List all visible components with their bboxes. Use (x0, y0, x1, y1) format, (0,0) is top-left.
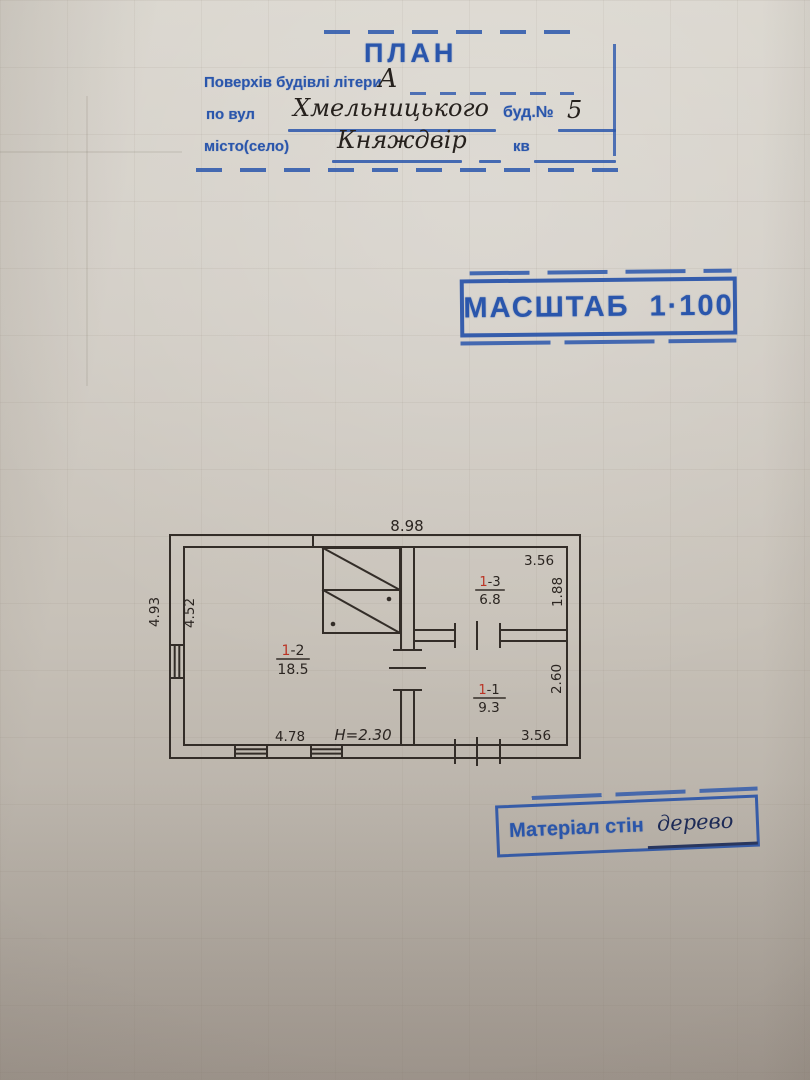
room-1-1-number: 1-1 (478, 683, 499, 698)
stove (323, 548, 400, 633)
window-bottom-right (311, 745, 342, 758)
bleedthrough-horizontal-line (0, 151, 182, 153)
ceiling-height-note: H=2.30 (334, 726, 391, 744)
material-underline (648, 842, 758, 849)
room-number-fraction-bars (277, 590, 505, 698)
dimension-room3-width: 3.56 (524, 553, 554, 569)
floors-value-handwritten: А (378, 64, 398, 94)
room-1-2-area: 18.5 (277, 662, 308, 678)
city-value-handwritten: Княждвір (337, 126, 467, 154)
stamp-top-dashed-border (324, 30, 588, 34)
stamp-bottom-dashed-border (196, 168, 620, 172)
material-label: Матеріал стін (509, 814, 645, 843)
window-left-wall (170, 645, 184, 678)
scale-stamp: МАСШТАБ 1·100 (460, 277, 738, 338)
room-1-1-area: 9.3 (478, 700, 499, 716)
entry-door-ticks (455, 738, 500, 765)
room-1-3-number: 1-3 (479, 575, 500, 590)
mid-dash (479, 160, 501, 163)
plan-header-stamp: ПЛАН Поверхів будівлі літери А по вул Хм… (196, 22, 620, 172)
floors-label: Поверхів будівлі літери (204, 74, 382, 91)
floorplan-drawing: 8.98 3.56 1.88 4.93 4.52 2.60 3.56 4.78 … (140, 500, 620, 790)
city-label: місто(село) (204, 138, 289, 155)
outer-walls (170, 535, 580, 758)
scale-value: 1·100 (649, 289, 734, 323)
street-value-handwritten: Хмельницького (293, 94, 489, 122)
city-underline (332, 160, 462, 163)
material-value-handwritten: дерево (656, 809, 733, 836)
dimension-top: 8.98 (390, 517, 423, 535)
dimension-left-inner: 4.52 (182, 598, 198, 628)
building-value-handwritten: 5 (567, 96, 582, 124)
window-bottom-left (235, 745, 267, 758)
dimension-room1-height: 2.60 (549, 664, 565, 694)
scanned-plan-page: ПЛАН Поверхів будівлі літери А по вул Хм… (0, 0, 810, 1080)
room-1-2-number: 1-2 (282, 643, 305, 659)
apartment-label: кв (513, 138, 530, 155)
bleedthrough-vertical-line (86, 96, 88, 386)
street-label: по вул (206, 106, 255, 123)
scale-label: МАСШТАБ (463, 290, 629, 325)
interior-wall-vertical (390, 547, 425, 745)
stamp-right-border (613, 44, 616, 156)
apartment-underline (534, 160, 616, 163)
dimension-room3-height: 1.88 (550, 577, 566, 607)
dimension-left-outer: 4.93 (147, 597, 163, 627)
dimension-bottom-left: 4.78 (275, 729, 305, 745)
building-label: буд.№ (503, 104, 554, 122)
wall-material-stamp: Матеріал стін дерево (495, 795, 760, 858)
dimension-room1-width: 3.56 (521, 728, 551, 744)
building-underline (558, 129, 616, 132)
room-1-3-area: 6.8 (479, 592, 500, 608)
interior-wall-horizontal (414, 622, 567, 649)
